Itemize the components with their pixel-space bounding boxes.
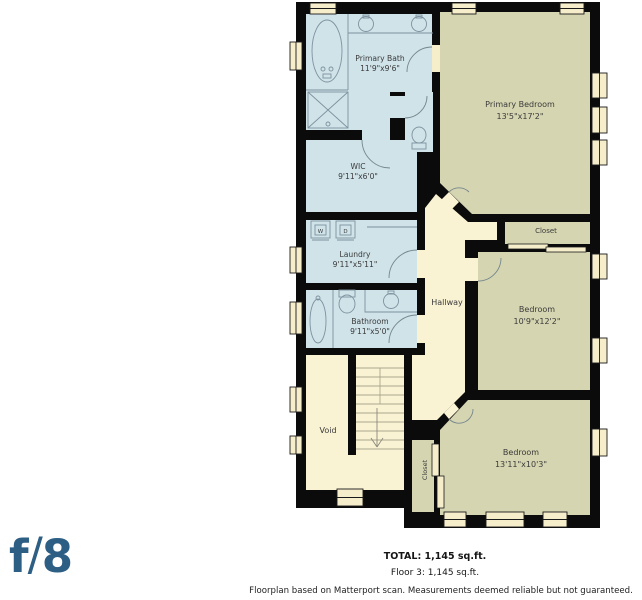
label-bedroom-middle: Bedroom: [519, 305, 555, 314]
label-dryer: D: [343, 229, 347, 235]
label-primary-bedroom-dims: 13'5"x17'2": [496, 112, 543, 121]
label-primary-bath: Primary Bath: [355, 54, 405, 63]
floorplan-page: Primary Bath 11'9"x9'6" WIC 9'11"x6'0" L…: [0, 0, 642, 600]
logo-f: f: [9, 530, 28, 583]
label-wic-dims: 9'11"x6'0": [338, 172, 378, 181]
window: [444, 512, 466, 527]
floorplan-drawing: Primary Bath 11'9"x9'6" WIC 9'11"x6'0" L…: [0, 0, 642, 600]
window: [592, 429, 607, 456]
door-opening: [417, 250, 425, 278]
logo-slash: /: [28, 528, 42, 581]
window: [592, 338, 607, 363]
window: [290, 387, 302, 412]
void-divider-wall: [348, 355, 356, 455]
label-closet-lower: Closet: [421, 459, 429, 480]
label-bathroom: Bathroom: [351, 317, 388, 326]
window: [337, 489, 363, 506]
room-primary-bath: [306, 14, 432, 92]
window: [290, 302, 302, 334]
label-bedroom-lower-dims: 13'11"x10'3": [495, 460, 547, 469]
f8-logo: f/8: [9, 534, 72, 579]
label-washer: W: [318, 229, 324, 235]
slider-panel: [508, 244, 548, 249]
window: [290, 42, 302, 70]
window: [592, 73, 607, 98]
label-primary-bath-dims: 11'9"x9'6": [360, 64, 400, 73]
label-laundry-dims: 9'11"x5'11": [333, 260, 378, 269]
room-bedroom-lower: [440, 400, 590, 515]
slider-panel: [432, 444, 439, 476]
window: [592, 140, 607, 165]
door-opening: [390, 96, 405, 118]
label-bedroom-lower: Bedroom: [503, 448, 539, 457]
disclaimer-text: Floorplan based on Matterport scan. Meas…: [231, 586, 642, 596]
window: [592, 254, 607, 279]
logo-eight: 8: [42, 530, 72, 583]
total-area-text: TOTAL: 1,145 sq.ft.: [235, 551, 635, 562]
door-opening: [465, 258, 478, 281]
label-wic: WIC: [350, 162, 365, 171]
door-opening: [417, 315, 425, 343]
floor-area-text: Floor 3: 1,145 sq.ft.: [235, 568, 635, 578]
window: [560, 3, 584, 14]
window: [310, 3, 336, 14]
window: [290, 436, 302, 454]
window: [486, 512, 524, 527]
door-opening: [432, 45, 440, 72]
slider-panel: [546, 247, 586, 252]
area-summary: TOTAL: 1,145 sq.ft. Floor 3: 1,145 sq.ft…: [235, 551, 635, 578]
window: [290, 247, 302, 273]
door-opening: [362, 130, 390, 140]
label-hallway: Hallway: [431, 298, 463, 307]
window: [452, 3, 476, 14]
label-laundry: Laundry: [340, 250, 371, 259]
slider-panel: [437, 476, 444, 508]
label-primary-bedroom: Primary Bedroom: [485, 100, 555, 109]
label-closet-upper: Closet: [535, 227, 557, 235]
window: [543, 512, 567, 527]
label-void: Void: [319, 426, 336, 435]
window: [592, 107, 607, 133]
label-bathroom-dims: 9'11"x5'0": [350, 327, 390, 336]
label-bedroom-middle-dims: 10'9"x12'2": [513, 317, 560, 326]
